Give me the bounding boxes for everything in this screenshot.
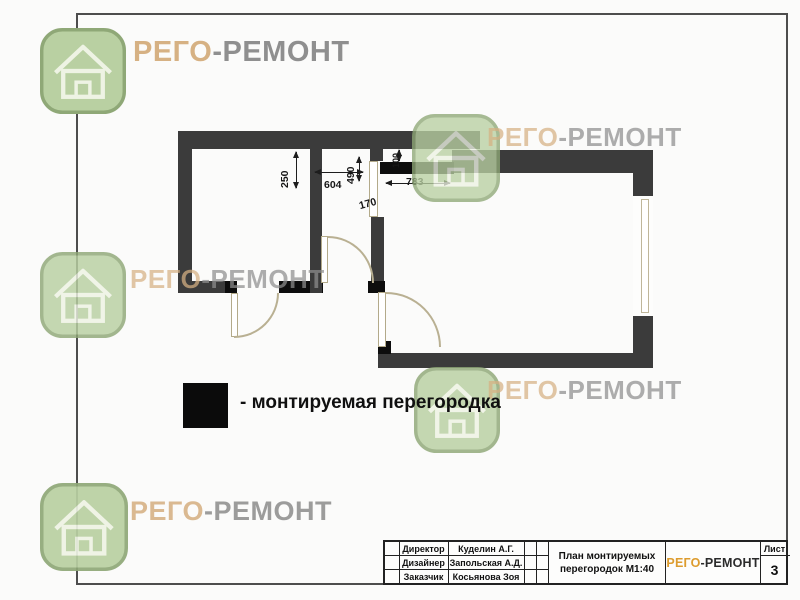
brand-second: -РЕМОНТ [204, 496, 332, 526]
title-block-grid-line [524, 542, 525, 583]
brand-second: -РЕМОНТ [558, 122, 681, 152]
dim-label-490: 490 [345, 166, 357, 184]
role-cell: Директор [400, 542, 447, 555]
title-block-grid-line [536, 542, 537, 583]
role-cell: Дизайнер [400, 556, 447, 569]
house-logo-icon [40, 252, 126, 338]
logo-first: РЕГО [666, 556, 700, 570]
door-swing-corridor [328, 236, 374, 283]
brand-first: РЕГО [130, 264, 201, 294]
dim-line-490 [359, 157, 360, 181]
brand-first: РЕГО [130, 496, 204, 526]
role-cell: Заказчик [400, 570, 447, 583]
dim-label-250: 250 [279, 170, 291, 188]
sheet-number: 3 [761, 557, 788, 583]
brand-watermark-top-right: РЕГО-РЕМОНТ [487, 122, 682, 153]
brand-first: РЕГО [487, 122, 558, 152]
legend-label: - монтируемая перегородка [240, 392, 501, 414]
dim-label-100: 100 [391, 153, 401, 168]
brand-watermark-mid-left: РЕГО-РЕМОНТ [130, 264, 325, 295]
brand-second: -РЕМОНТ [558, 375, 681, 405]
title-block-logo: РЕГО-РЕМОНТ [666, 542, 760, 583]
sheet-label: Лист [761, 542, 788, 556]
logo-second: -РЕМОНТ [701, 556, 760, 570]
brand-first: РЕГО [133, 36, 212, 68]
brand-second: -РЕМОНТ [201, 264, 324, 294]
door-swing-room1 [234, 293, 279, 338]
name-cell: Куделин А.Г. [449, 542, 523, 555]
name-cell: Запольская А.Д. [449, 556, 523, 569]
brand-watermark-mid-right: РЕГО-РЕМОНТ [487, 375, 682, 406]
door-swing-mainroom [386, 292, 441, 347]
dim-line-250 [296, 152, 297, 188]
door-leaf-mainroom [378, 292, 386, 347]
name-cell: Косьянова Зоя [449, 570, 523, 583]
brand-watermark-top-left: РЕГО-РЕМОНТ [133, 36, 350, 69]
title-block: Директор Дизайнер Заказчик Куделин А.Г. … [383, 540, 788, 585]
wall-closet-right-top [370, 149, 383, 161]
drawing-title-line2: перегородок М1:40 [560, 563, 654, 576]
legend-partition-swatch [183, 383, 228, 428]
brand-second: -РЕМОНТ [212, 36, 349, 68]
window-glazing-bar [641, 199, 649, 313]
brand-watermark-bottom-left: РЕГО-РЕМОНТ [130, 496, 332, 527]
drawing-title-line1: План монтируемых [559, 550, 656, 563]
drawing-title: План монтируемых перегородок М1:40 [549, 542, 665, 583]
house-logo-icon [40, 27, 126, 115]
house-logo-icon [40, 483, 128, 571]
dim-label-604: 604 [324, 179, 342, 191]
